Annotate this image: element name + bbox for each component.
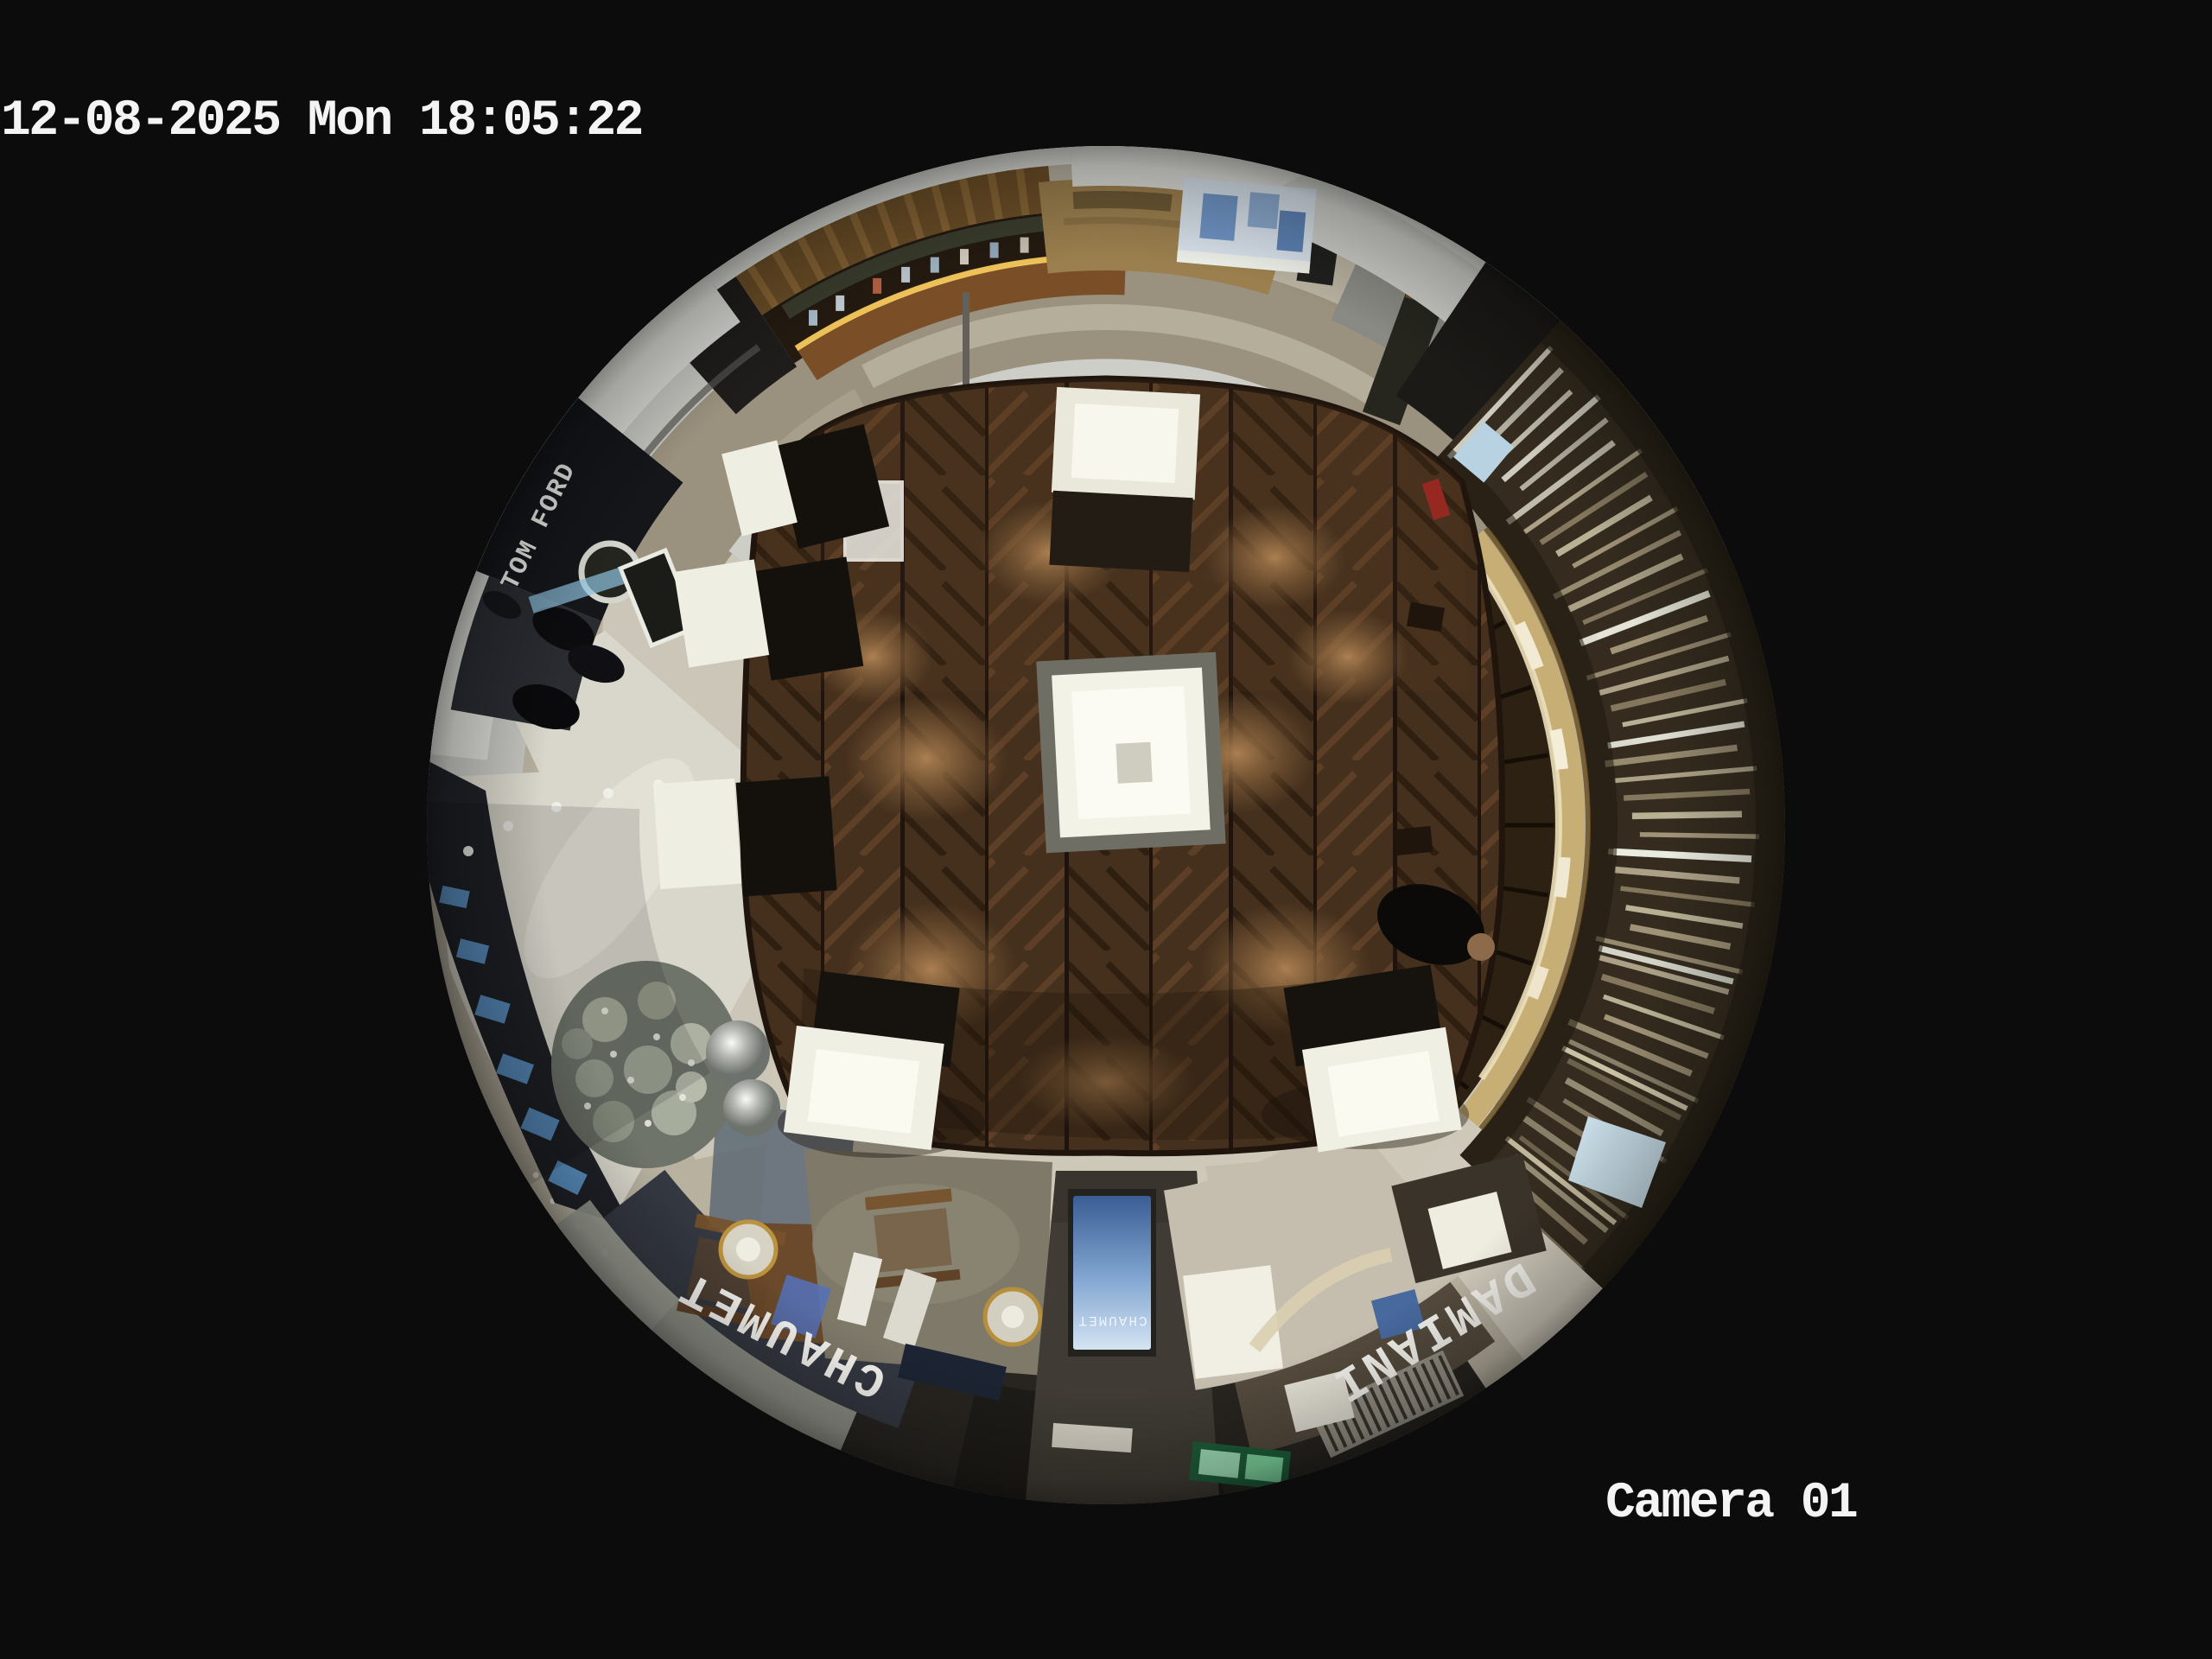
svg-text:12-08-2025 Mon 18:05:22: 12-08-2025 Mon 18:05:22 — [1, 93, 642, 149]
svg-text:Camera 01: Camera 01 — [1605, 1476, 1857, 1532]
